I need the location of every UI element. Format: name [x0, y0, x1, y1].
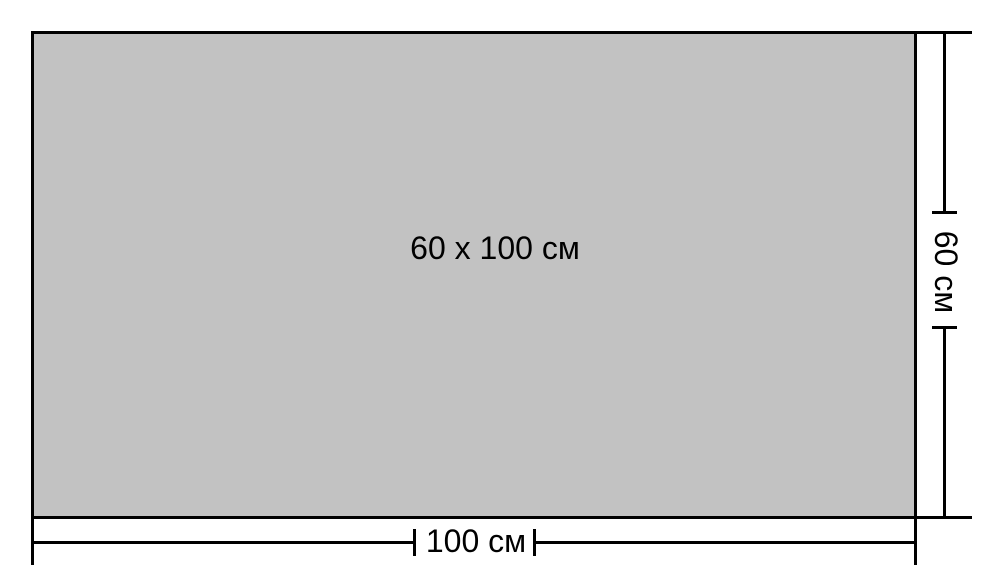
height-dimension-line-upper	[943, 31, 946, 214]
height-dimension-tick-upper	[932, 211, 957, 214]
panel-rectangle	[31, 31, 917, 519]
dimension-diagram: 60 x 100 см 60 см 100 см	[0, 0, 1000, 582]
height-dimension-label: 60 см	[930, 231, 962, 313]
width-dimension-line-right	[534, 541, 917, 544]
width-dimension-tick-left	[413, 529, 416, 556]
area-size-label: 60 x 100 см	[410, 232, 580, 264]
width-dimension-label: 100 см	[426, 525, 526, 557]
width-dimension-line-left	[31, 541, 415, 544]
height-dimension-line-lower	[943, 327, 946, 519]
